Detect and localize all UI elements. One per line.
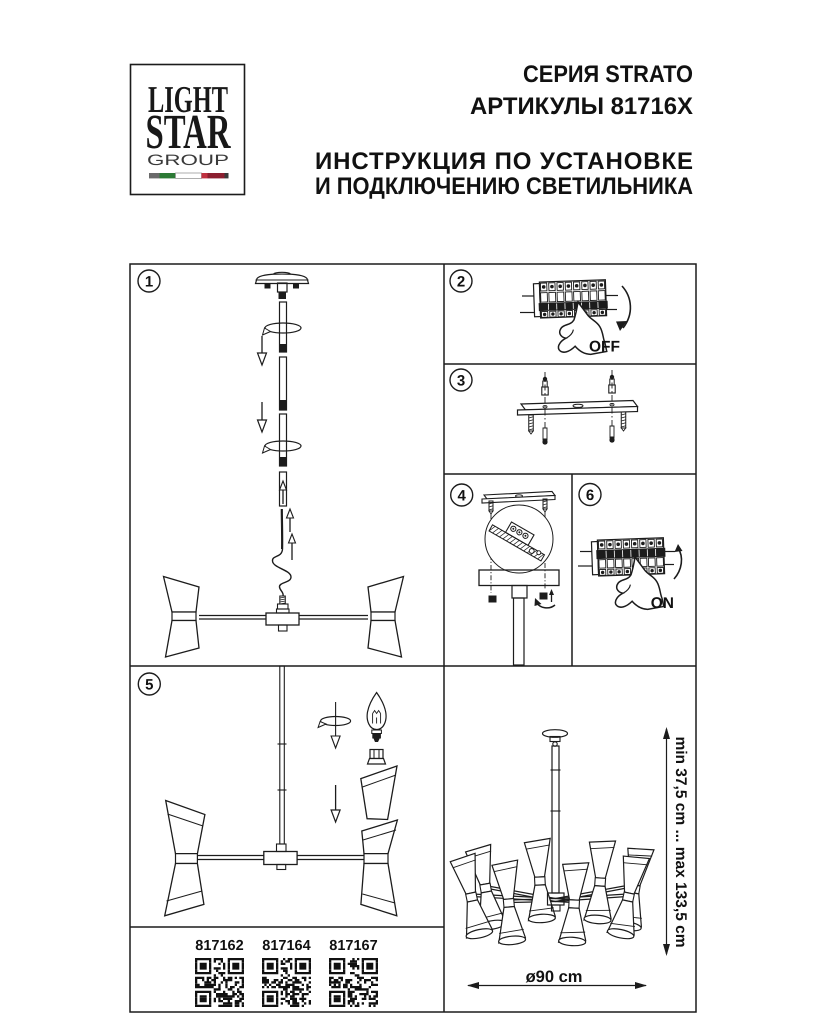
svg-text:2: 2: [457, 274, 465, 291]
svg-text:817162: 817162: [195, 938, 243, 954]
svg-text:ø90 cm: ø90 cm: [526, 968, 583, 986]
svg-text:1: 1: [145, 274, 153, 291]
svg-text:817167: 817167: [329, 938, 377, 954]
svg-text:STAR: STAR: [146, 104, 231, 159]
svg-text:817164: 817164: [262, 938, 310, 954]
svg-text:ON: ON: [651, 595, 674, 612]
svg-text:GROUP: GROUP: [147, 152, 229, 169]
svg-text:И ПОДКЛЮЧЕНИЮ СВЕТИЛЬНИКА: И ПОДКЛЮЧЕНИЮ СВЕТИЛЬНИКА: [315, 173, 693, 200]
svg-text:OFF: OFF: [589, 339, 620, 356]
svg-text:5: 5: [145, 677, 153, 694]
svg-text:min 37,5 cm ... max 133,5 cm: min 37,5 cm ... max 133,5 cm: [672, 736, 689, 947]
svg-text:3: 3: [457, 373, 465, 390]
svg-text:АРТИКУЛЫ 81716X: АРТИКУЛЫ 81716X: [470, 93, 693, 120]
svg-text:6: 6: [586, 487, 594, 504]
svg-text:СЕРИЯ STRATO: СЕРИЯ STRATO: [523, 61, 693, 88]
svg-text:4: 4: [458, 488, 467, 505]
svg-text:ИНСТРУКЦИЯ ПО УСТАНОВКЕ: ИНСТРУКЦИЯ ПО УСТАНОВКЕ: [315, 148, 693, 175]
